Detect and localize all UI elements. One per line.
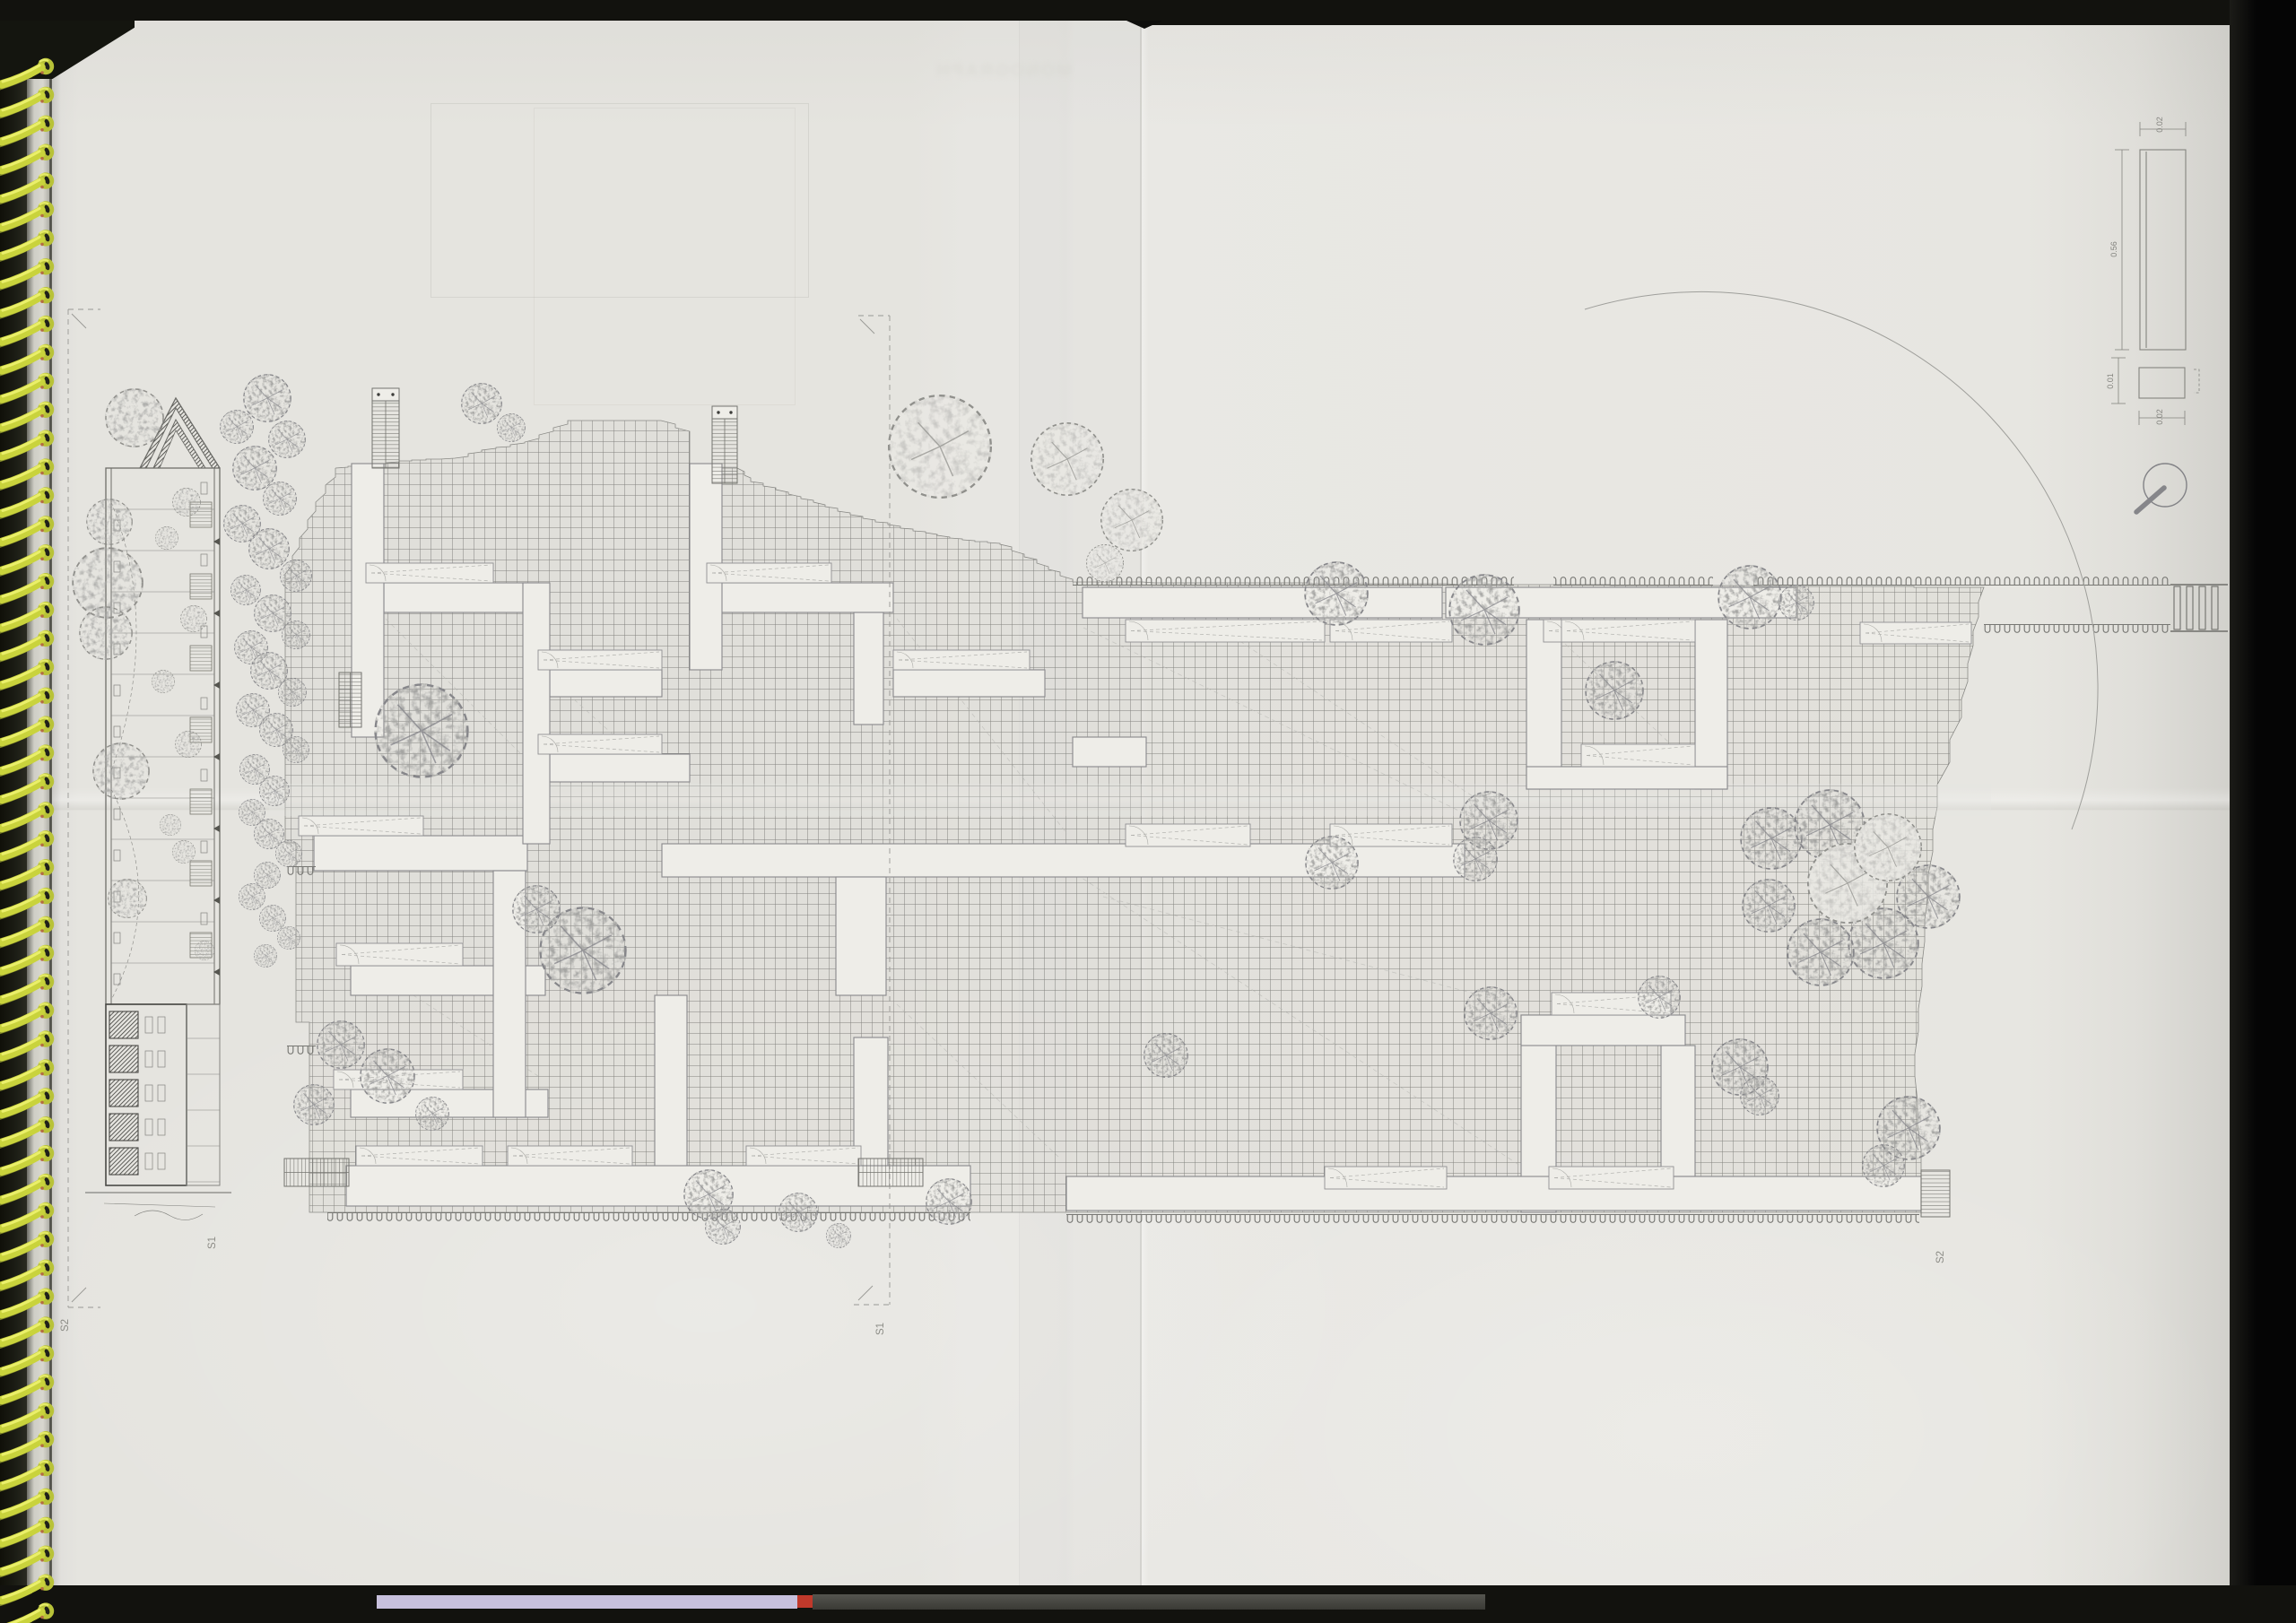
svg-text:0.02: 0.02 xyxy=(2155,409,2164,425)
svg-text:0.02: 0.02 xyxy=(2155,117,2164,133)
svg-text:S1: S1 xyxy=(207,1237,218,1249)
svg-text:S1: S1 xyxy=(875,1323,886,1335)
svg-text:S2: S2 xyxy=(1935,1251,1946,1263)
svg-text:0.01: 0.01 xyxy=(2106,373,2115,389)
svg-text:0.56: 0.56 xyxy=(2109,241,2118,257)
